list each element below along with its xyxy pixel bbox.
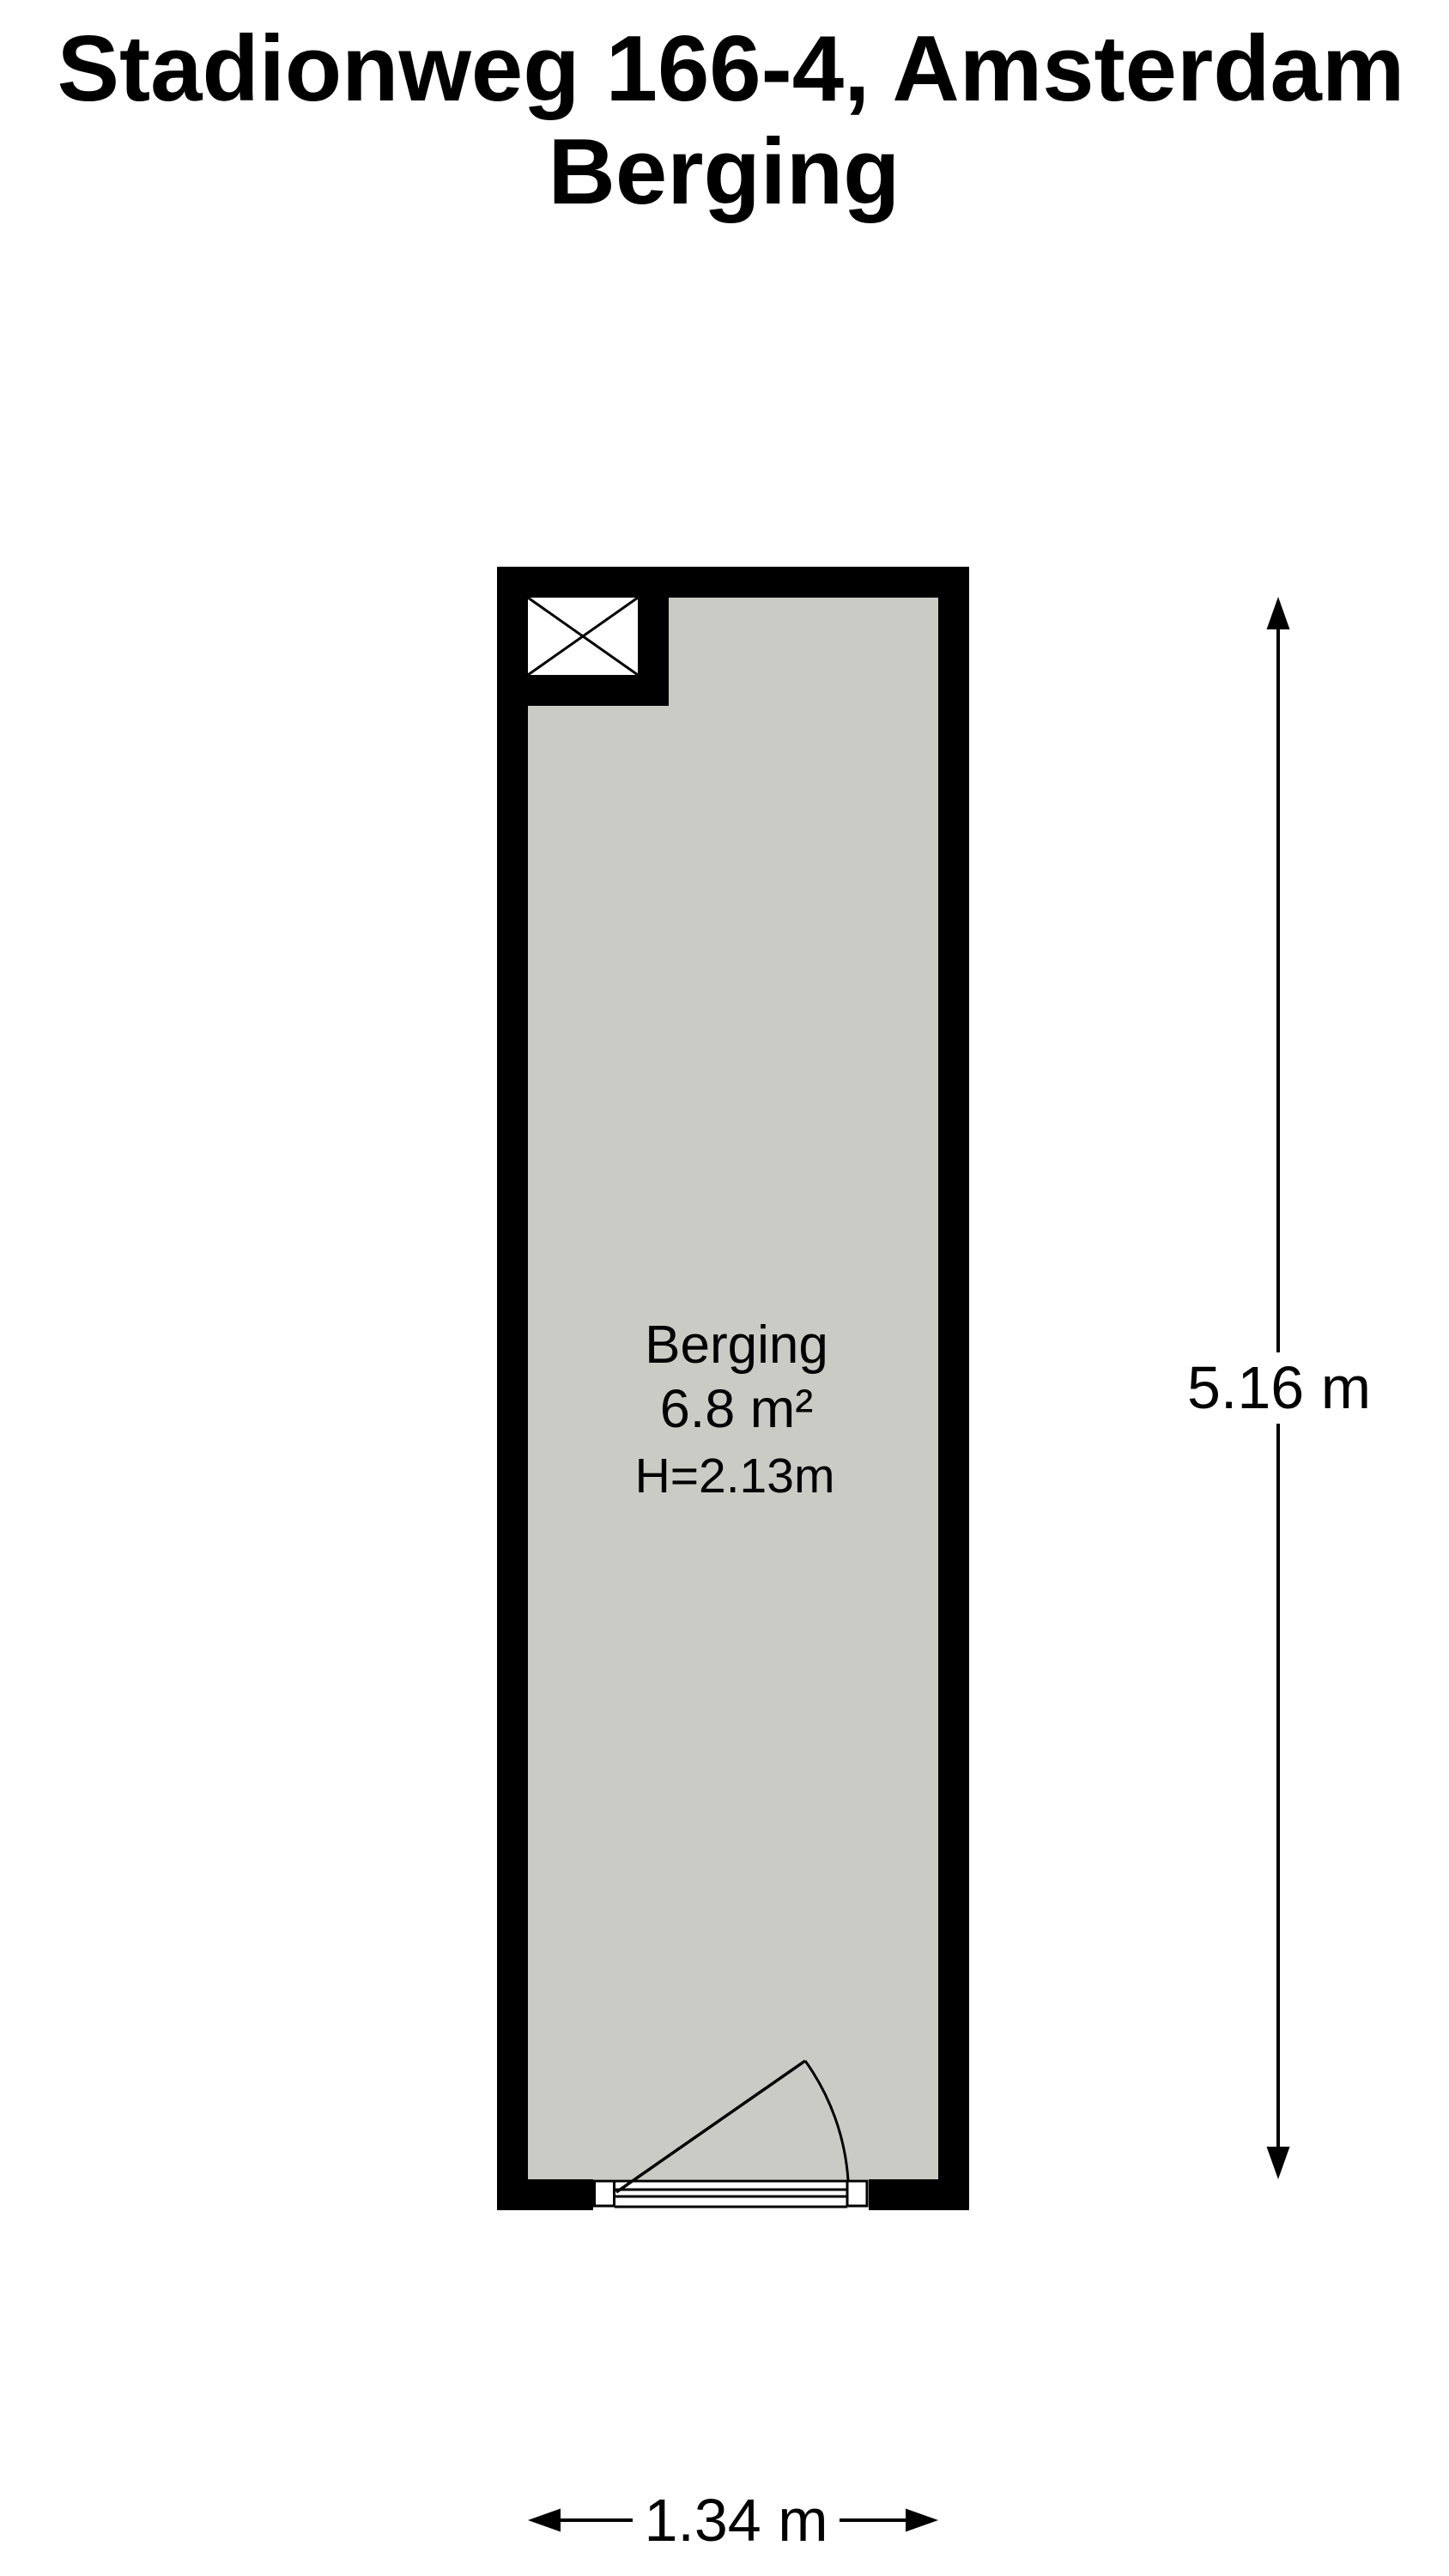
- svg-text:Stadionweg 166-4, Amsterdam: Stadionweg 166-4, Amsterdam: [58, 16, 1405, 120]
- svg-text:Berging: Berging: [645, 1315, 828, 1375]
- svg-text:6.8 m²: 6.8 m²: [660, 1379, 814, 1439]
- svg-text:1.34 m: 1.34 m: [645, 2487, 828, 2554]
- svg-text:Berging: Berging: [549, 119, 900, 223]
- svg-text:H=2.13m: H=2.13m: [635, 1449, 835, 1504]
- svg-text:5.16 m: 5.16 m: [1187, 1354, 1371, 1421]
